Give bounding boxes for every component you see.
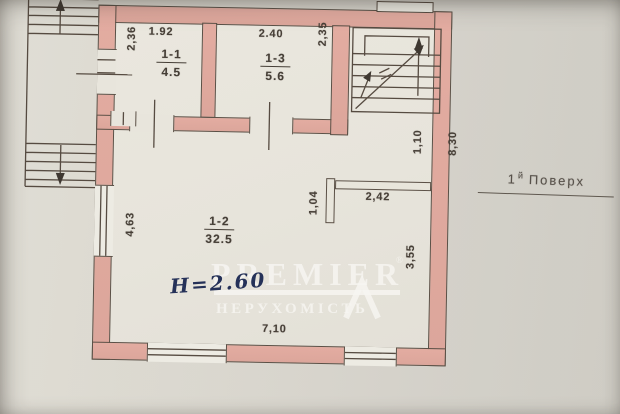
dim-right-side: 3,55 [399, 239, 422, 275]
floor-suffix: й [518, 170, 523, 180]
room-label-1-1: 1-1 4.5 [145, 47, 198, 80]
arrowhead-down-icon [56, 173, 65, 185]
entrance-door-tick [76, 74, 132, 75]
dim-stair-opening: 1,10 [407, 124, 430, 160]
door-swing-tick-room11 [154, 100, 155, 148]
floor-word: Поверх [529, 172, 586, 189]
window-glazing-left [100, 186, 107, 256]
dim-partition-length: 2,42 [352, 191, 404, 204]
room-label-1-3: 1-3 5.6 [249, 51, 302, 84]
dim-left-window: 4,63 [119, 206, 142, 242]
dim-right-wall: 8,30 [442, 125, 465, 161]
room-area: 32.5 [205, 230, 233, 247]
floor-caption: 1йПоверх [478, 169, 615, 198]
dim-bottom-width: 7,10 [246, 323, 302, 336]
dim-room13-width: 2.40 [249, 28, 293, 41]
dim-room11-width: 1.92 [139, 25, 183, 38]
floor-plan-drawing: 1.92 2.40 2,36 2,35 1,10 8,30 2,42 1,04 … [0, 0, 620, 414]
room-area: 4.5 [161, 63, 181, 79]
entrance-threshold-lines [97, 60, 115, 73]
dim-room11-depth: 2,36 [121, 20, 144, 56]
room-id: 1-3 [260, 51, 291, 68]
scanned-floor-plan-page: 1.92 2.40 2,36 2,35 1,10 8,30 2,42 1,04 … [0, 0, 620, 414]
room-id: 1-2 [204, 214, 235, 231]
room-area: 5.6 [265, 67, 285, 83]
interior-staircase [352, 28, 442, 114]
floor-number: 1 [507, 171, 517, 186]
room-label-1-2: 1-2 32.5 [187, 213, 252, 246]
door-swing-tick-room13 [269, 102, 270, 150]
dim-room13-depth: 2,35 [312, 16, 335, 52]
stair-down-arrow-icon [60, 145, 61, 173]
arrowhead-up-icon [56, 0, 65, 11]
exterior-staircase [25, 0, 99, 188]
window-glazing-bottom [148, 349, 396, 360]
room-id: 1-1 [156, 47, 187, 64]
dim-partition-return: 1,04 [302, 185, 325, 221]
